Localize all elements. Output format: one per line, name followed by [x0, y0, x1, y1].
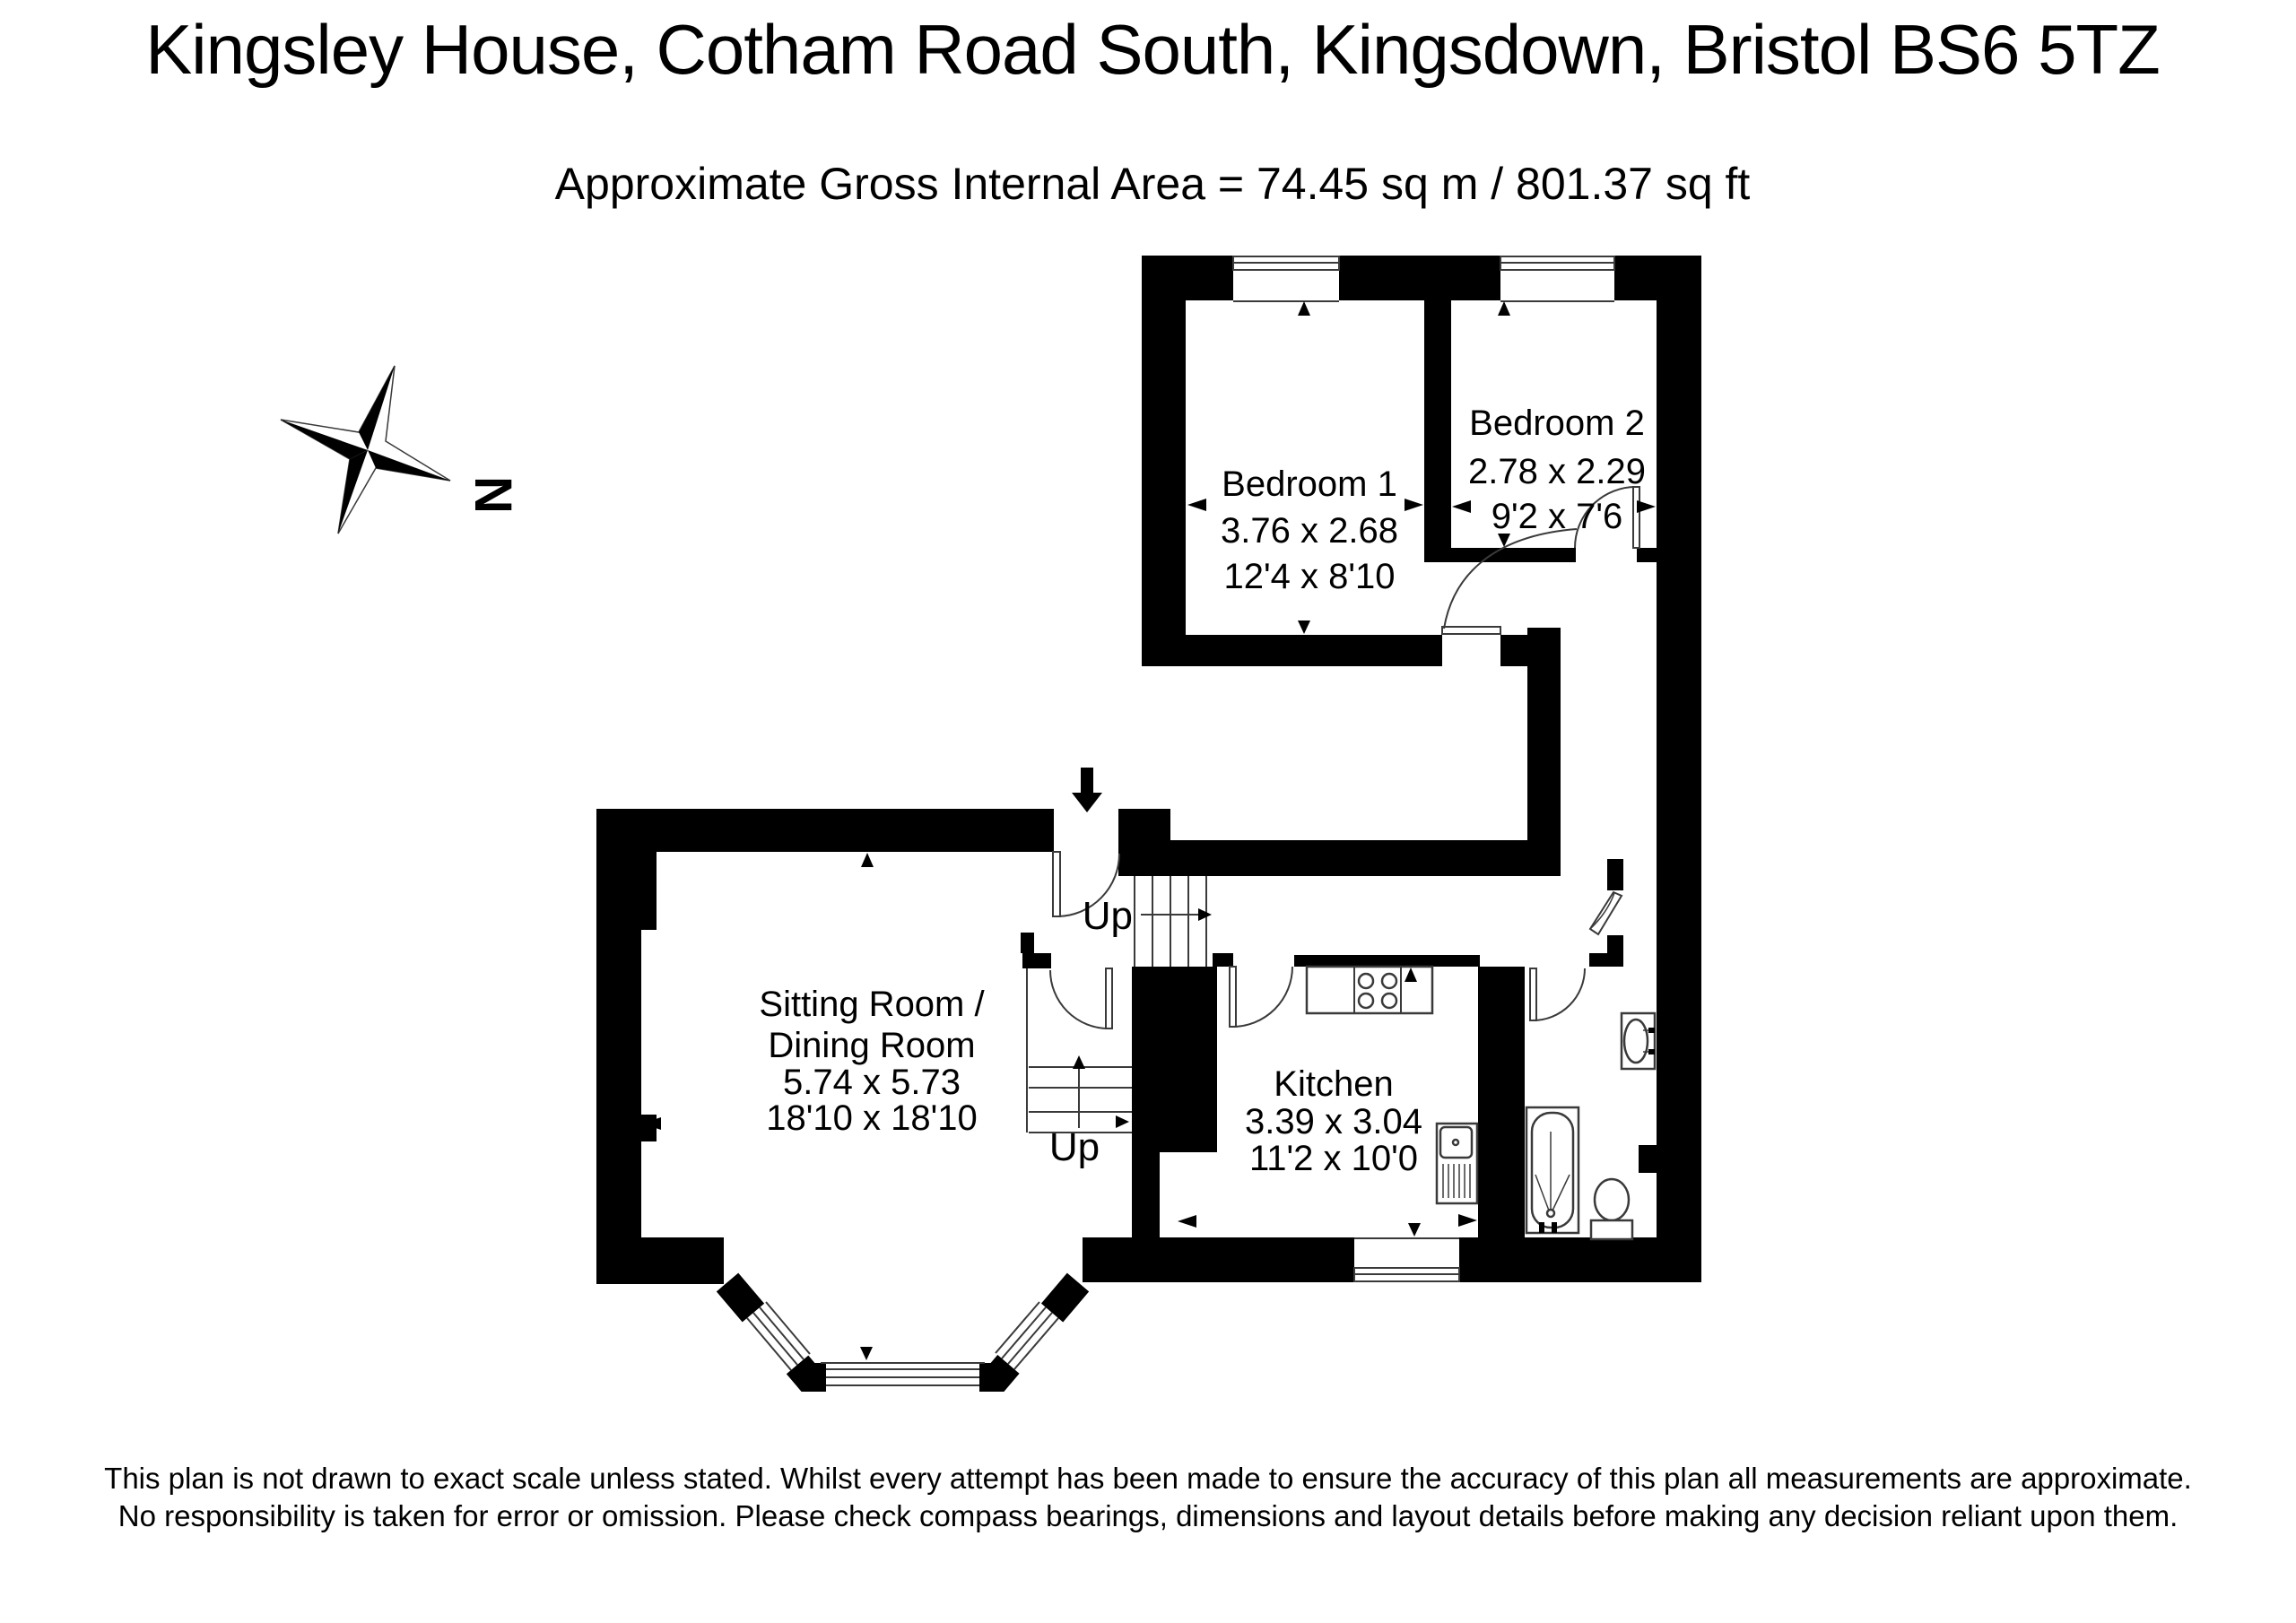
- bedroom2-size-imperial: 9'2 x 7'6: [1492, 497, 1622, 536]
- kitchen-size-metric: 3.39 x 3.04: [1245, 1102, 1422, 1141]
- disclaimer-line1: This plan is not drawn to exact scale un…: [104, 1462, 2192, 1495]
- header: Kingsley House, Cotham Road South, Kings…: [145, 10, 2159, 209]
- cupboard-door: [1590, 892, 1622, 934]
- bedroom1-size-metric: 3.76 x 2.68: [1221, 511, 1398, 551]
- stairs-upper: Up: [1083, 876, 1212, 967]
- bedroom1-size-imperial: 12'4 x 8'10: [1224, 557, 1396, 596]
- bedroom1-window: [1233, 256, 1339, 301]
- compass-rose-icon: N: [281, 366, 522, 534]
- disclaimer: This plan is not drawn to exact scale un…: [104, 1462, 2192, 1532]
- stairs-upper-label: Up: [1083, 894, 1133, 938]
- sitting-size-imperial: 18'10 x 18'10: [766, 1098, 977, 1138]
- kitchen-window: [1354, 1238, 1459, 1281]
- bedroom1-name: Bedroom 1: [1222, 464, 1397, 504]
- bedroom2-window: [1500, 256, 1614, 301]
- hob: [1307, 967, 1432, 1013]
- sitting-name-line2: Dining Room: [768, 1026, 975, 1065]
- kitchen-label: Kitchen 3.39 x 3.04 11'2 x 10'0: [1245, 1064, 1422, 1178]
- floorplan-svg: Kingsley House, Cotham Road South, Kings…: [0, 0, 2296, 1623]
- sitting-name-line1: Sitting Room /: [759, 985, 985, 1024]
- stairs-lower: Up: [1027, 968, 1132, 1169]
- bedroom2-size-metric: 2.78 x 2.29: [1468, 452, 1646, 491]
- kitchen-name: Kitchen: [1274, 1064, 1393, 1104]
- entrance-arrow-icon: [1072, 768, 1102, 812]
- bath: [1526, 1107, 1578, 1233]
- floorplan-page: Kingsley House, Cotham Road South, Kings…: [0, 0, 2296, 1623]
- wash-basin: [1622, 1013, 1655, 1069]
- page-title: Kingsley House, Cotham Road South, Kings…: [145, 10, 2159, 89]
- bay-window: [727, 1282, 1078, 1385]
- north-label: N: [464, 476, 522, 514]
- sitting-size-metric: 5.74 x 5.73: [783, 1063, 961, 1102]
- kitchen-size-imperial: 11'2 x 10'0: [1249, 1139, 1418, 1178]
- kitchen-sink: [1437, 1124, 1477, 1203]
- bedroom1-door: [1442, 529, 1577, 634]
- page-subtitle: Approximate Gross Internal Area = 74.45 …: [555, 159, 1751, 209]
- stairs-lower-label: Up: [1049, 1125, 1100, 1169]
- bathroom-door: [1530, 968, 1585, 1020]
- sitting-room-door: [1050, 968, 1112, 1028]
- disclaimer-line2: No responsibility is taken for error or …: [118, 1499, 2179, 1532]
- bedroom2-name: Bedroom 2: [1469, 404, 1645, 443]
- sitting-dining-label: Sitting Room / Dining Room 5.74 x 5.73 1…: [759, 985, 985, 1138]
- bedroom1-label: Bedroom 1 3.76 x 2.68 12'4 x 8'10: [1221, 464, 1398, 596]
- toilet: [1591, 1179, 1632, 1239]
- bedroom2-label: Bedroom 2 2.78 x 2.29 9'2 x 7'6: [1468, 404, 1646, 536]
- kitchen-door: [1230, 967, 1292, 1027]
